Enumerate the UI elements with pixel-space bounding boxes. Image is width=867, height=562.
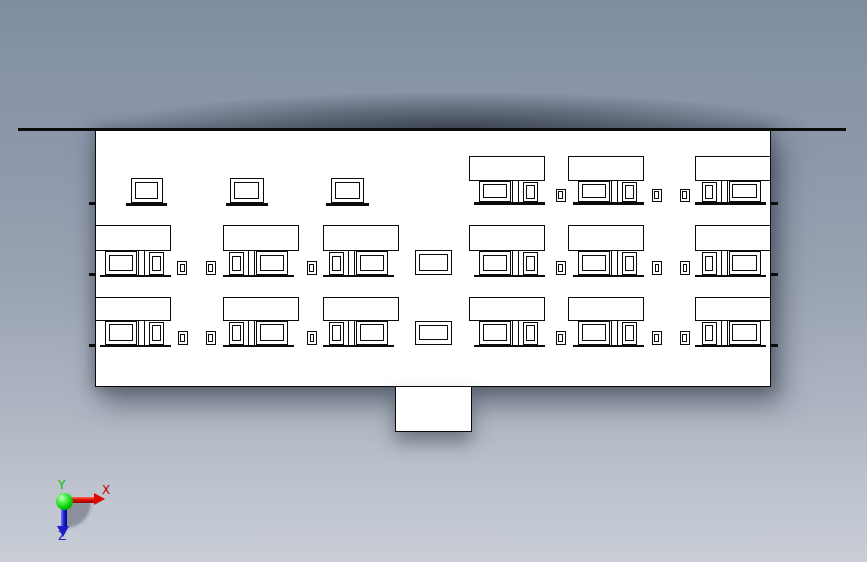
small-window-inner-frame	[558, 334, 562, 342]
display-window-wide	[105, 251, 137, 274]
display-window-wide-inner-frame	[483, 324, 507, 340]
x-axis-label: X	[102, 484, 110, 496]
display-window-narrow-inner-frame	[332, 325, 340, 341]
origin-sphere-icon	[56, 493, 73, 510]
display-window-narrow-inner-frame	[526, 185, 534, 199]
display-window-narrow-inner-frame	[625, 256, 633, 272]
display-window-narrow-inner-frame	[526, 256, 534, 272]
window-mullion	[248, 251, 255, 274]
small-window-inner-frame	[310, 334, 314, 342]
window-mullion	[512, 181, 519, 203]
awning	[469, 225, 545, 251]
shop-unit	[695, 225, 771, 278]
display-window-narrow-inner-frame	[152, 325, 160, 341]
shop-unit	[469, 225, 545, 278]
window-mullion	[138, 321, 145, 345]
window-sill	[573, 345, 644, 348]
window-mullion	[348, 251, 355, 274]
small-window	[652, 331, 662, 345]
display-window-narrow	[229, 252, 244, 274]
small-window-inner-frame	[682, 334, 686, 342]
elevation-drawing	[0, 0, 867, 562]
display-window-narrow	[523, 182, 538, 203]
display-window-wide	[105, 321, 137, 345]
awning	[323, 225, 399, 251]
shop-unit	[568, 297, 644, 348]
window-mullion	[512, 251, 519, 274]
display-window-narrow-inner-frame	[232, 325, 240, 341]
display-window-narrow-inner-frame	[705, 325, 713, 341]
small-window	[307, 261, 317, 275]
display-window-narrow-inner-frame	[152, 256, 160, 272]
display-window-narrow	[149, 322, 164, 345]
window-mullion	[721, 321, 728, 345]
small-window	[556, 331, 566, 345]
small-window	[652, 261, 662, 275]
shop-unit	[568, 156, 644, 206]
display-window-wide	[479, 321, 511, 345]
small-window	[556, 261, 566, 275]
small-window-inner-frame	[682, 191, 686, 199]
small-window	[307, 331, 317, 345]
window-mullion	[348, 321, 355, 345]
center-window	[415, 250, 452, 275]
shop-unit	[469, 156, 545, 206]
display-window-wide	[729, 181, 761, 203]
display-window-narrow	[622, 322, 637, 345]
ground-line	[18, 128, 846, 131]
window-mullion	[512, 321, 519, 345]
window-mullion	[721, 251, 728, 274]
awning	[323, 297, 399, 321]
small-window	[206, 331, 216, 345]
window-sill	[573, 202, 644, 205]
window-mullion	[611, 251, 618, 274]
display-window-narrow-inner-frame	[625, 325, 633, 341]
plain-window-sill	[126, 203, 167, 205]
display-window-wide-inner-frame	[109, 255, 133, 271]
display-window-narrow-inner-frame	[705, 256, 713, 272]
plain-window-sill	[226, 203, 269, 205]
display-window-wide-inner-frame	[732, 255, 756, 271]
floor-tick-left	[89, 344, 96, 347]
display-window-wide-inner-frame	[260, 255, 284, 271]
display-window-wide	[256, 251, 288, 274]
display-window-narrow	[702, 252, 717, 274]
display-window-wide-inner-frame	[360, 255, 384, 271]
small-window	[206, 261, 216, 275]
awning	[469, 156, 545, 181]
entrance-porch[interactable]	[395, 386, 472, 432]
display-window-wide-inner-frame	[582, 324, 606, 340]
shop-unit	[469, 297, 545, 348]
display-window-wide	[578, 251, 610, 274]
small-window-inner-frame	[654, 334, 658, 342]
display-window-narrow-inner-frame	[332, 256, 340, 272]
shop-unit	[223, 225, 299, 278]
display-window-narrow-inner-frame	[705, 185, 713, 199]
small-window-inner-frame	[180, 334, 184, 342]
awning	[95, 225, 171, 251]
display-window-wide-inner-frame	[732, 184, 756, 198]
display-window-narrow	[702, 322, 717, 345]
window-sill	[100, 275, 171, 278]
display-window-narrow	[229, 322, 244, 345]
awning	[695, 297, 771, 321]
cad-viewport[interactable]: Y X Z	[0, 0, 867, 562]
shop-unit	[568, 225, 644, 278]
shop-unit	[695, 156, 771, 206]
display-window-wide	[356, 251, 388, 274]
floor-tick-right	[771, 273, 778, 276]
center-window-inner-frame	[419, 254, 448, 271]
shop-unit	[323, 297, 399, 348]
display-window-narrow-inner-frame	[625, 185, 633, 199]
small-window	[680, 261, 690, 275]
small-window-inner-frame	[655, 264, 659, 272]
display-window-wide	[356, 321, 388, 345]
plain-window	[230, 178, 264, 203]
plain-window-inner-frame	[135, 182, 159, 199]
display-window-wide-inner-frame	[360, 324, 384, 340]
display-window-wide-inner-frame	[483, 255, 507, 271]
display-window-wide	[479, 251, 511, 274]
center-window	[415, 321, 452, 345]
display-window-narrow	[329, 322, 344, 345]
display-window-narrow	[329, 252, 344, 274]
window-sill	[323, 275, 394, 278]
display-window-wide	[729, 251, 761, 274]
plain-window-sill	[326, 203, 369, 205]
awning	[695, 225, 771, 251]
window-sill	[323, 345, 394, 348]
display-window-narrow	[523, 252, 538, 274]
display-window-narrow-inner-frame	[526, 325, 534, 341]
window-sill	[695, 275, 766, 278]
floor-tick-right	[771, 202, 778, 205]
window-mullion	[721, 181, 728, 203]
shop-unit	[95, 297, 171, 348]
small-window-inner-frame	[180, 264, 184, 272]
plain-window	[331, 178, 365, 203]
display-window-wide	[479, 181, 511, 203]
display-window-narrow	[702, 182, 717, 203]
display-window-wide	[578, 181, 610, 203]
small-window	[680, 331, 690, 345]
small-window-inner-frame	[208, 334, 212, 342]
shop-unit	[695, 297, 771, 348]
display-window-wide-inner-frame	[732, 324, 756, 340]
small-window-inner-frame	[558, 264, 562, 272]
small-window	[177, 261, 187, 275]
small-window-inner-frame	[558, 191, 562, 199]
small-window-inner-frame	[208, 264, 212, 272]
window-sill	[223, 275, 294, 278]
display-window-wide-inner-frame	[109, 324, 133, 340]
display-window-narrow	[622, 252, 637, 274]
small-window	[652, 189, 662, 203]
display-window-narrow-inner-frame	[232, 256, 240, 272]
window-sill	[695, 345, 766, 348]
small-window-inner-frame	[654, 191, 658, 199]
floor-tick-left	[89, 202, 96, 205]
small-window-inner-frame	[309, 264, 313, 272]
awning	[223, 225, 299, 251]
window-sill	[474, 345, 545, 348]
small-window	[556, 189, 566, 203]
window-sill	[474, 275, 545, 278]
small-window	[178, 331, 188, 345]
display-window-wide	[729, 321, 761, 345]
display-window-narrow	[622, 182, 637, 203]
display-window-wide-inner-frame	[260, 324, 284, 340]
awning	[223, 297, 299, 321]
center-window-inner-frame	[419, 325, 448, 341]
display-window-wide-inner-frame	[582, 255, 606, 271]
awning	[95, 297, 171, 321]
window-mullion	[611, 181, 618, 203]
shop-unit	[323, 225, 399, 278]
y-axis-label: Y	[58, 479, 65, 491]
window-mullion	[138, 251, 145, 274]
window-mullion	[611, 321, 618, 345]
awning	[568, 156, 644, 181]
display-window-wide	[256, 321, 288, 345]
window-sill	[474, 202, 545, 205]
display-window-wide-inner-frame	[582, 184, 606, 198]
window-sill	[573, 275, 644, 278]
shop-unit	[95, 225, 171, 278]
small-window	[680, 189, 690, 203]
window-sill	[100, 345, 171, 348]
plain-window-inner-frame	[335, 182, 360, 199]
window-sill	[695, 202, 766, 205]
shop-unit	[223, 297, 299, 348]
small-window-inner-frame	[683, 264, 687, 272]
floor-tick-right	[771, 344, 778, 347]
awning	[695, 156, 771, 181]
floor-tick-left	[89, 273, 96, 276]
display-window-wide	[578, 321, 610, 345]
plain-window-inner-frame	[234, 182, 259, 199]
display-window-narrow	[523, 322, 538, 345]
display-window-wide-inner-frame	[483, 184, 507, 198]
display-window-narrow	[149, 252, 164, 274]
awning	[469, 297, 545, 321]
window-sill	[223, 345, 294, 348]
z-axis-label: Z	[58, 530, 66, 542]
window-mullion	[248, 321, 255, 345]
awning	[568, 297, 644, 321]
awning	[568, 225, 644, 251]
plain-window	[131, 178, 163, 203]
